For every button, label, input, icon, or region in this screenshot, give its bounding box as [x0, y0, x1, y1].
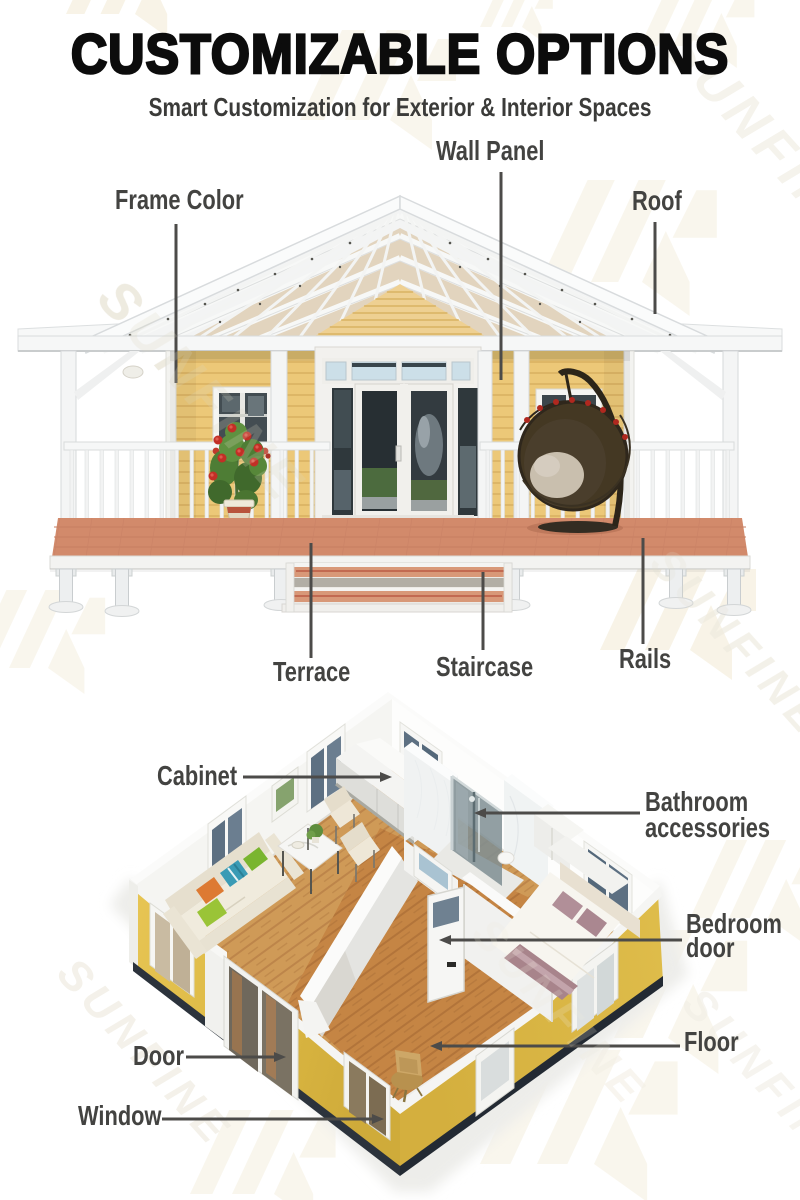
svg-text:SUNFINE: SUNFINE — [673, 979, 800, 1187]
